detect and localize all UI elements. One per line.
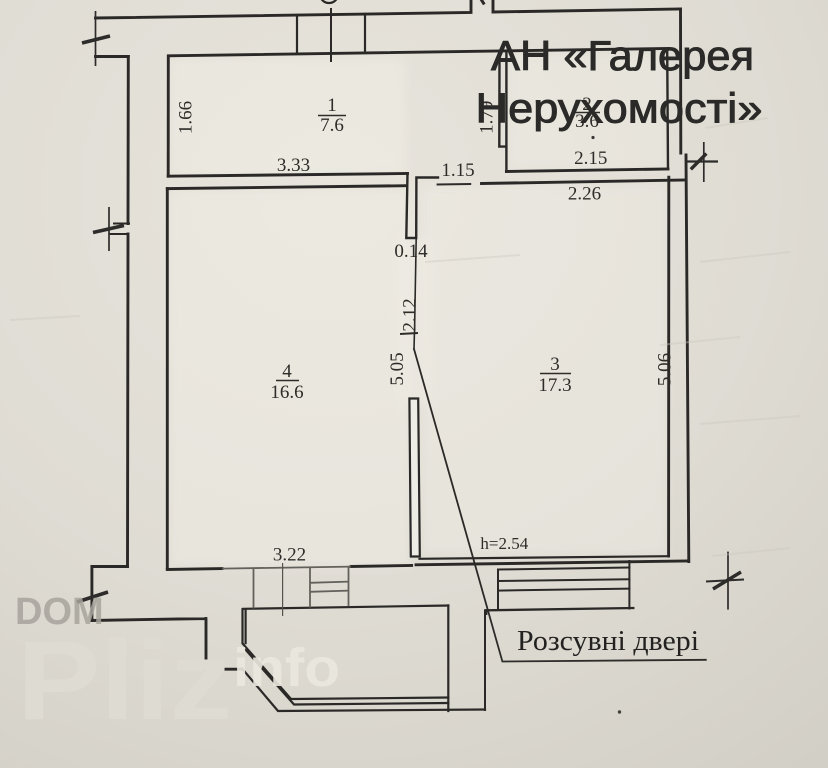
svg-text:1.15: 1.15 <box>441 160 474 181</box>
svg-text:3: 3 <box>550 354 560 375</box>
svg-text:1: 1 <box>327 95 337 116</box>
svg-text:h=2.54: h=2.54 <box>480 534 528 553</box>
svg-text:2.15: 2.15 <box>574 148 607 169</box>
svg-text:4: 4 <box>282 361 292 382</box>
svg-text:5.05: 5.05 <box>387 352 408 385</box>
svg-text:17.3: 17.3 <box>538 375 571 396</box>
svg-text:Розсувні двері: Розсувні двері <box>517 625 699 657</box>
svg-text:3.33: 3.33 <box>277 155 310 176</box>
svg-text:2.26: 2.26 <box>568 184 601 205</box>
svg-text:1.66: 1.66 <box>176 101 197 134</box>
svg-text:Pliz: Pliz <box>17 618 232 743</box>
svg-text:5.06: 5.06 <box>655 353 676 386</box>
svg-text:0.14: 0.14 <box>394 241 428 262</box>
svg-text:info: info <box>233 638 340 698</box>
svg-text:16.6: 16.6 <box>270 382 303 403</box>
svg-text:АН «Галерея: АН «Галерея <box>491 32 754 79</box>
svg-text:Нерухомості»: Нерухомості» <box>476 84 763 131</box>
svg-text:2.12: 2.12 <box>400 298 421 331</box>
svg-text:3.22: 3.22 <box>273 545 306 566</box>
svg-text:7.6: 7.6 <box>320 115 344 136</box>
